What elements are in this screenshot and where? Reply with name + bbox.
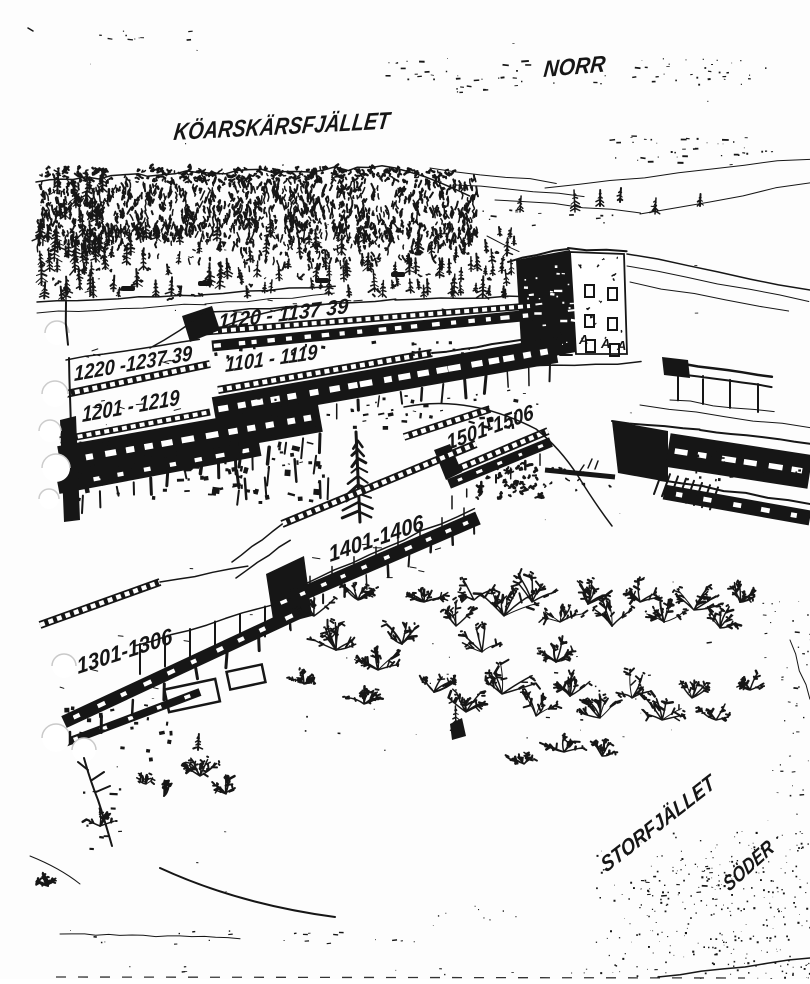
svg-text:A: A [578, 332, 588, 347]
svg-text:A: A [616, 338, 626, 353]
svg-text:A: A [555, 329, 565, 344]
